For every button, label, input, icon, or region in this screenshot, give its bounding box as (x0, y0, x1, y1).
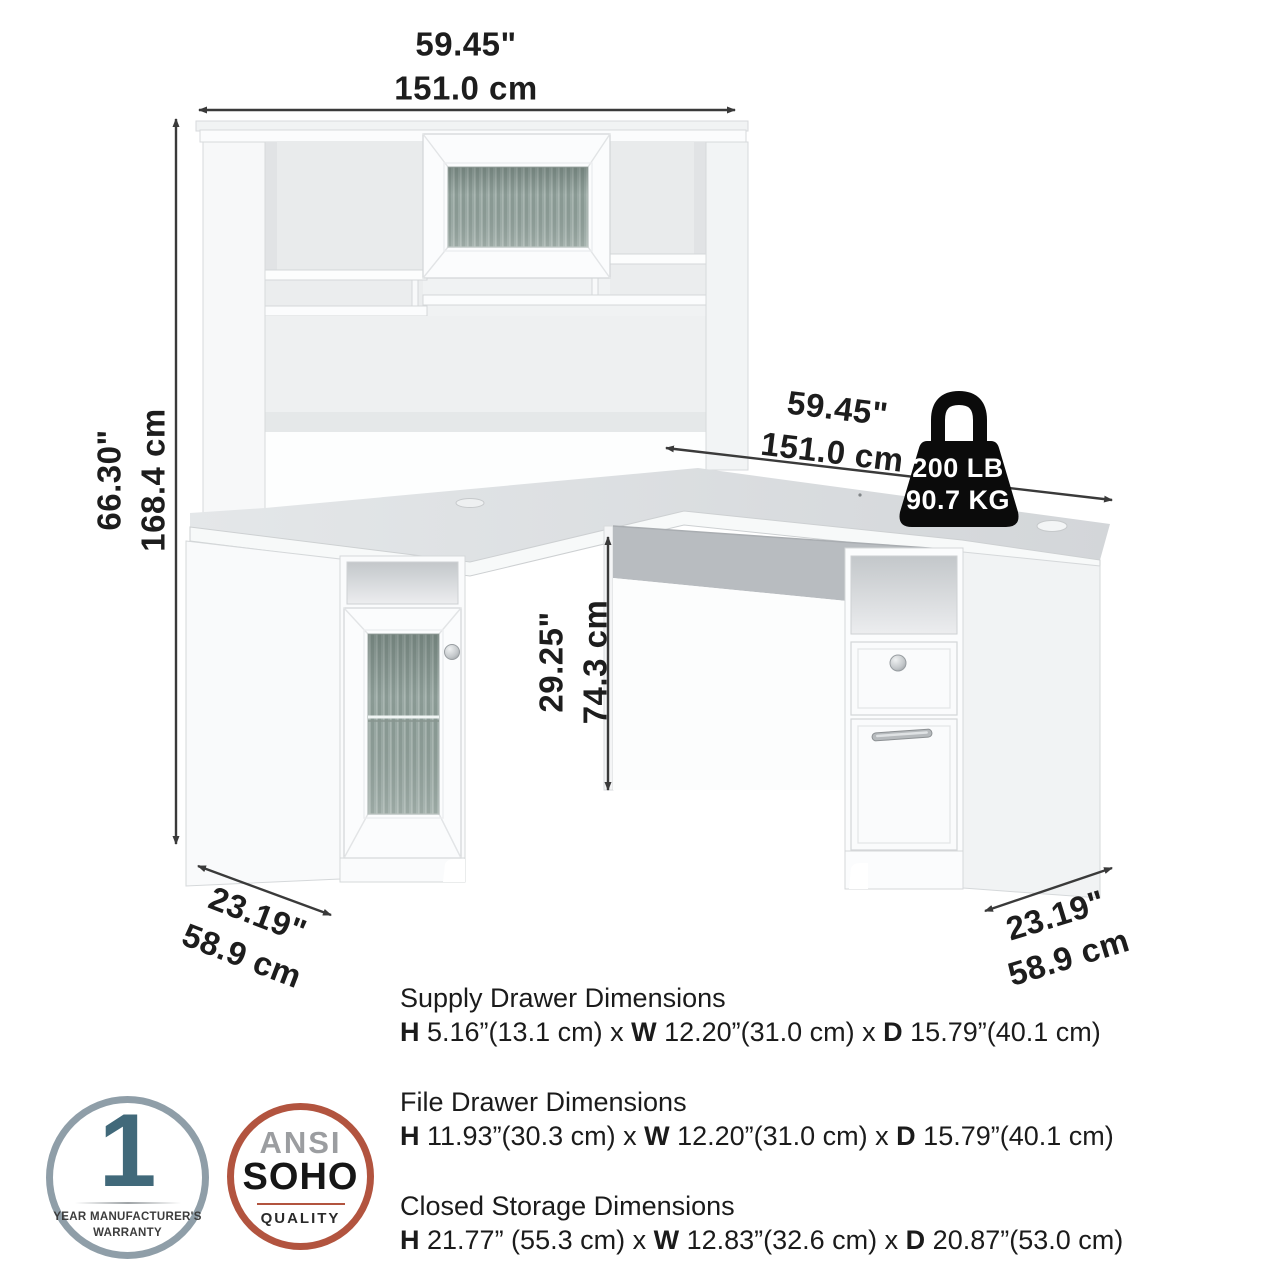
spec-values: H 5.16”(13.1 cm) x W 12.20”(31.0 cm) x D… (400, 1016, 1180, 1048)
spec-values: H 11.93”(30.3 cm) x W 12.20”(31.0 cm) x … (400, 1120, 1180, 1152)
drawer-knob (890, 655, 906, 671)
hutch-left-side-panel (203, 142, 265, 525)
supply-drawer (851, 642, 957, 715)
overall-height-label: 66.30" 168.4 cm (87, 408, 174, 551)
hutch-right-side-panel (706, 142, 748, 470)
plinth-cutout (443, 859, 465, 882)
divider (75, 1202, 181, 1204)
desk (186, 468, 1110, 898)
soho-text: SOHO (243, 1158, 359, 1198)
spec-title: Supply Drawer Dimensions (400, 982, 1180, 1014)
cable-grommet (1037, 521, 1067, 532)
spec-title: File Drawer Dimensions (400, 1086, 1180, 1118)
cable-grommet (456, 499, 484, 508)
hutch (196, 121, 748, 525)
spec-section-closed-storage: Closed Storage Dimensions H 21.77” (55.3… (400, 1190, 1180, 1256)
cabinet-door (344, 608, 461, 858)
left-side-panel (186, 541, 340, 886)
warranty-text-line1: YEAR MANUFACTURER'S (53, 1210, 201, 1226)
quality-text: QUALITY (261, 1211, 341, 1226)
right-side-panel (963, 552, 1100, 898)
spec-list: Supply Drawer Dimensions H 5.16”(13.1 cm… (400, 982, 1180, 1256)
storage-cabinet (340, 556, 465, 882)
hutch-width-label: 59.45" 151.0 cm (394, 22, 537, 109)
product-dimension-diagram: 59.45" 151.0 cm 66.30" 168.4 cm 59.45" 1… (0, 0, 1280, 1280)
spec-section-supply-drawer: Supply Drawer Dimensions H 5.16”(13.1 cm… (400, 982, 1180, 1048)
hutch-shelf (261, 270, 427, 280)
file-drawer (851, 719, 957, 850)
ansi-text: ANSI (259, 1127, 341, 1158)
pedestal-cubby (851, 556, 957, 634)
desk-width-label: 59.45" 151.0 cm (759, 378, 912, 482)
warranty-text-line2: WARRANTY (93, 1226, 162, 1242)
cabinet-knob (445, 645, 460, 660)
ansi-soho-badge: ANSI SOHO QUALITY (227, 1103, 374, 1250)
spec-section-file-drawer: File Drawer Dimensions H 11.93”(30.3 cm)… (400, 1086, 1180, 1152)
right-pedestal (845, 548, 963, 889)
hutch-shelf (423, 295, 710, 305)
warranty-badge: 1 YEAR MANUFACTURER'S WARRANTY (46, 1096, 209, 1259)
hutch-shelf (606, 254, 710, 264)
spec-values: H 21.77” (55.3 cm) x W 12.83”(32.6 cm) x… (400, 1224, 1180, 1256)
plinth-cutout (849, 863, 868, 889)
warranty-number: 1 (99, 1106, 157, 1198)
spec-title: Closed Storage Dimensions (400, 1190, 1180, 1222)
cabinet-cubby (347, 562, 458, 604)
hutch-shelf (261, 306, 427, 316)
weight-capacity-label: 200 LB 90.7 KG (906, 453, 1010, 517)
desk-height-label: 29.25" 74.3 cm (529, 600, 616, 725)
hutch-door (423, 134, 610, 278)
divider (257, 1203, 345, 1205)
